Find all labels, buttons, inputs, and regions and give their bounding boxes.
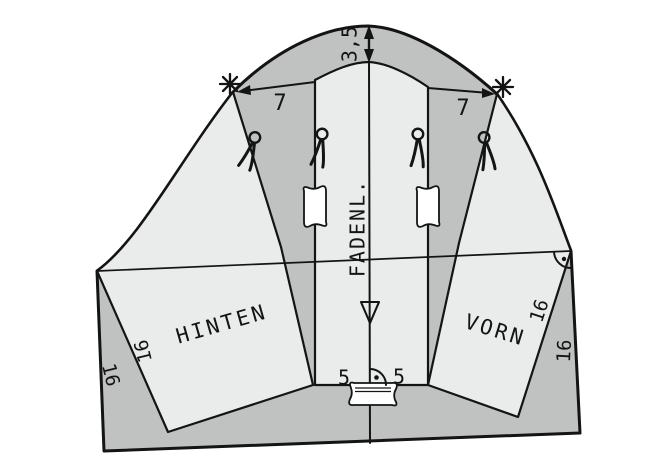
pattern-svg: 3,5 7 7 FADENL. HINTEN VORN 5 5 16 16 16… xyxy=(0,0,671,461)
length-outer-right-label: 16 xyxy=(553,339,576,363)
sleeve-pattern-diagram: 3,5 7 7 FADENL. HINTEN VORN 5 5 16 16 16… xyxy=(0,0,671,461)
cap-raise-label: 3,5 xyxy=(338,26,362,62)
center-piece-region xyxy=(315,62,428,385)
match-star-left-icon xyxy=(220,74,240,94)
hem-left-label: 5 xyxy=(338,366,350,390)
match-star-right-icon xyxy=(493,77,513,97)
hem-right-label: 5 xyxy=(393,365,405,389)
spread-left-label: 7 xyxy=(273,91,286,116)
tape-patch-icon xyxy=(304,186,327,227)
tape-patch-icon xyxy=(349,383,397,406)
spread-right-label: 7 xyxy=(456,96,469,121)
grainline-label: FADENL. xyxy=(346,179,370,277)
tape-patch-icon xyxy=(417,186,440,227)
